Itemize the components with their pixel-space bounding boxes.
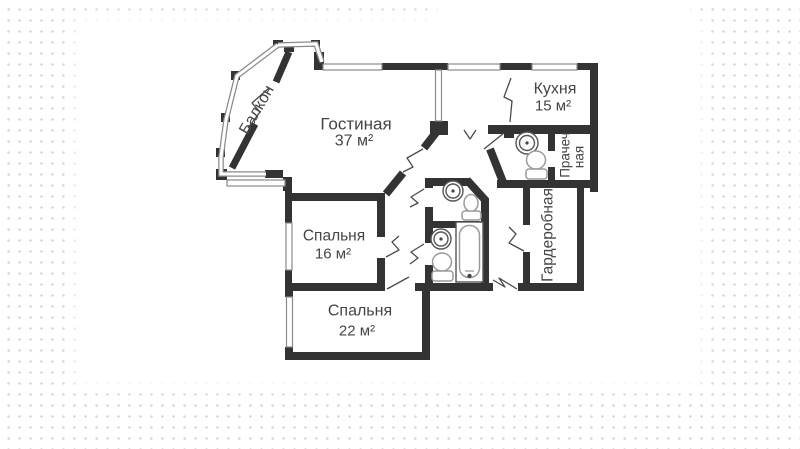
opening-hall-tick	[464, 130, 476, 139]
door-bathroom	[410, 244, 424, 264]
room-area-kitchen: 15 м²	[535, 98, 571, 115]
room-label-living: Гостиная	[320, 115, 391, 134]
bathtub-icon	[456, 222, 483, 282]
floor-plan-drawing: Гостиная 37 м² Кухня 15 м² Спальня 16 м²…	[0, 0, 800, 449]
room-label-kitchen: Кухня	[534, 81, 577, 98]
room-label-laundry-line1: Прачеч	[558, 132, 573, 178]
door-entrance	[493, 278, 517, 289]
room-area-bedroom-small: 16 м²	[315, 246, 351, 263]
window-kitchen	[532, 64, 577, 70]
room-label-bedroom-small: Спальня	[303, 228, 365, 245]
door-laundry	[484, 133, 504, 149]
window-bedroom-large	[287, 297, 293, 347]
window-bedroom-small	[286, 223, 292, 270]
room-label-wardrobe: Гардеробная	[540, 188, 557, 282]
glazed-partition-living	[436, 70, 442, 121]
room-label-bedroom-large: Спальня	[328, 303, 392, 320]
door-living	[403, 149, 423, 172]
window-living-west	[227, 180, 285, 186]
window-hall-top	[448, 64, 500, 70]
door-bedroom-small	[386, 236, 399, 257]
room-label-balcony: Балкон	[236, 83, 278, 138]
door-wc	[410, 189, 424, 207]
wc-sink-icon	[443, 181, 463, 201]
door-bedroom-large	[387, 277, 409, 289]
window-living-top	[323, 64, 382, 70]
laundry-toilet-icon	[526, 151, 547, 179]
room-area-bedroom-large: 22 м²	[339, 323, 375, 340]
bath-sink-icon	[431, 229, 451, 249]
room-area-living: 37 м²	[335, 133, 374, 150]
door-kitchen	[504, 78, 512, 122]
bath-toilet-icon	[432, 253, 453, 281]
room-label-laundry-line2: ная	[572, 146, 587, 168]
floor-plan-page: Гостиная 37 м² Кухня 15 м² Спальня 16 м²…	[0, 0, 800, 449]
wc-toilet-icon	[462, 195, 481, 221]
door-wardrobe	[509, 227, 524, 251]
